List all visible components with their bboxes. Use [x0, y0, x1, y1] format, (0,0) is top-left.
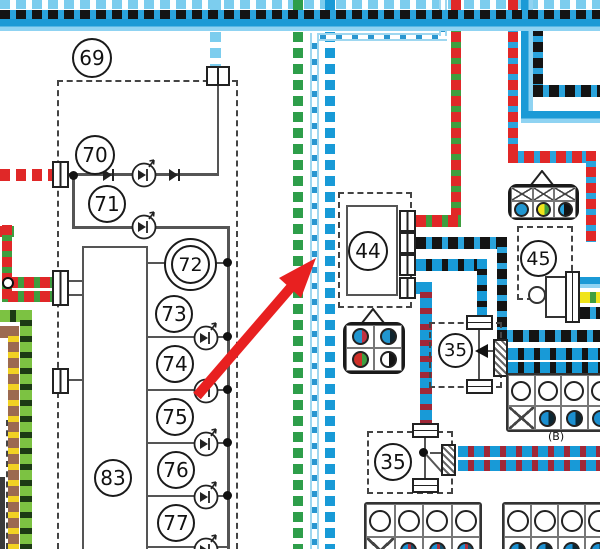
red-annotation-arrow [0, 0, 600, 549]
wiring-diagram: 69 70 71 72 73 74 75 76 77 83 44 45 35 3… [0, 0, 600, 549]
